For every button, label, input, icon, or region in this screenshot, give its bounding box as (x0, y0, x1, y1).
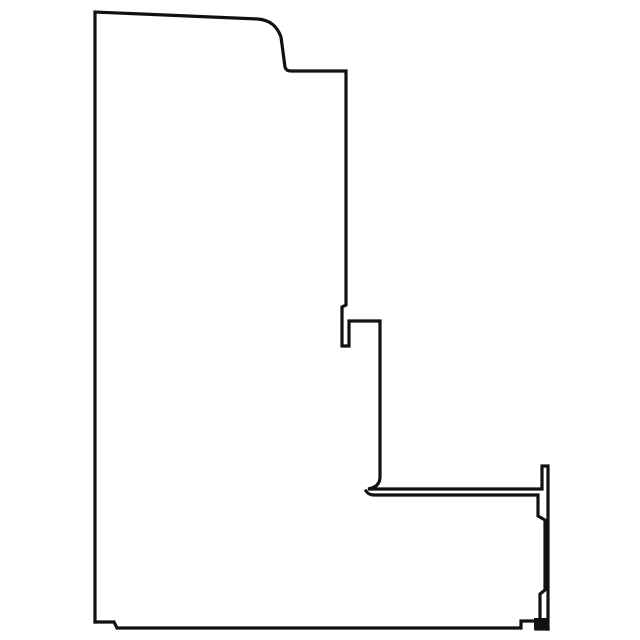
profile-shelf-inner-lines (366, 491, 545, 618)
profile-bottom-right-joint (534, 618, 550, 630)
profile-drawing (0, 0, 640, 640)
drawing-canvas (0, 0, 640, 640)
profile-main-outline (95, 12, 548, 629)
profile-bottom-edge (95, 621, 548, 629)
